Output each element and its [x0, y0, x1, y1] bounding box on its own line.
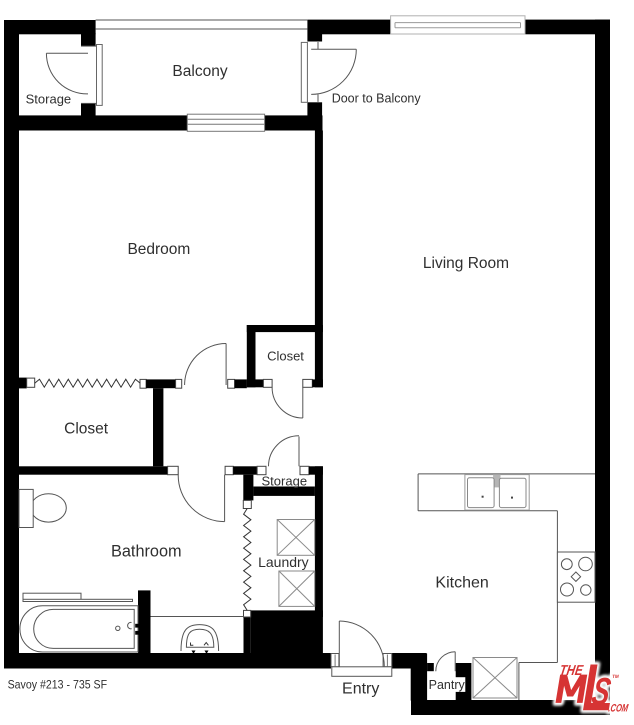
svg-text:Entry: Entry: [342, 681, 379, 698]
svg-text:Savoy #213 - 735 SF: Savoy #213 - 735 SF: [8, 677, 108, 691]
svg-text:Bedroom: Bedroom: [127, 241, 190, 258]
svg-text:Closet: Closet: [64, 421, 109, 438]
svg-text:Door to Balcony: Door to Balcony: [332, 92, 422, 106]
svg-text:TM: TM: [612, 674, 619, 679]
svg-text:Closet: Closet: [267, 349, 304, 364]
svg-text:Kitchen: Kitchen: [435, 575, 488, 592]
svg-text:Balcony: Balcony: [172, 63, 227, 80]
svg-text:Laundry: Laundry: [258, 554, 309, 570]
svg-text:Bathroom: Bathroom: [111, 543, 182, 561]
svg-text:Storage: Storage: [26, 92, 72, 107]
svg-text:Living Room: Living Room: [423, 255, 509, 272]
svg-text:Pantry: Pantry: [429, 678, 466, 692]
svg-text:Storage: Storage: [262, 474, 308, 489]
svg-text:.COM: .COM: [607, 703, 629, 714]
